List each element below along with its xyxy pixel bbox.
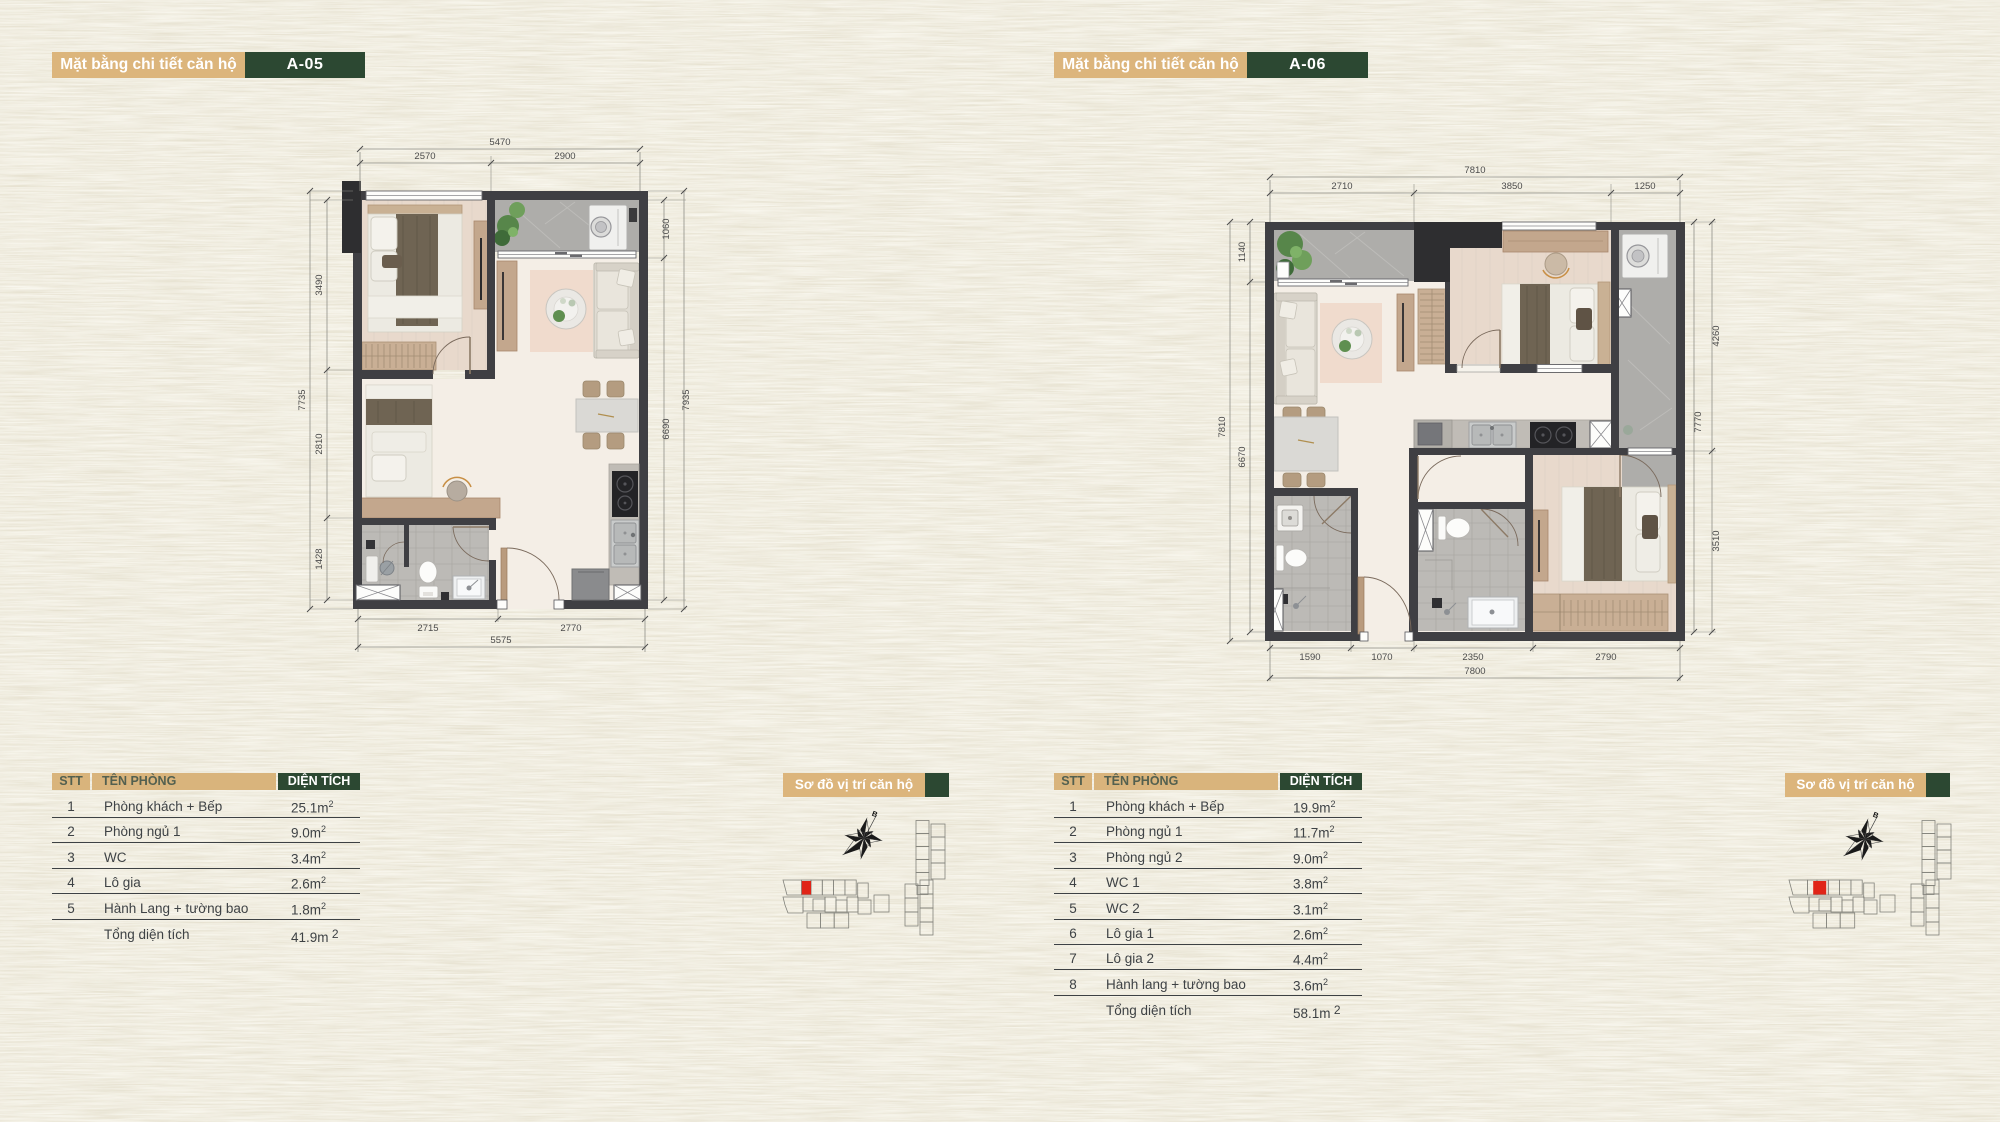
svg-text:2810: 2810 bbox=[314, 433, 325, 454]
svg-text:6670: 6670 bbox=[1237, 446, 1248, 467]
svg-text:B: B bbox=[1872, 810, 1881, 821]
svg-text:2900: 2900 bbox=[554, 151, 575, 162]
svg-text:5470: 5470 bbox=[489, 137, 510, 148]
svg-text:1140: 1140 bbox=[1237, 242, 1248, 262]
svg-text:5575: 5575 bbox=[490, 635, 511, 646]
svg-text:3490: 3490 bbox=[314, 274, 325, 295]
svg-text:7735: 7735 bbox=[297, 389, 308, 410]
svg-text:2790: 2790 bbox=[1595, 652, 1616, 663]
svg-text:2715: 2715 bbox=[417, 623, 438, 634]
svg-text:1428: 1428 bbox=[314, 548, 325, 569]
svg-text:3510: 3510 bbox=[1711, 530, 1722, 551]
svg-text:1070: 1070 bbox=[1371, 652, 1392, 663]
svg-text:1590: 1590 bbox=[1299, 652, 1320, 663]
svg-text:1250: 1250 bbox=[1634, 181, 1655, 192]
svg-text:6690: 6690 bbox=[661, 418, 672, 439]
svg-text:3850: 3850 bbox=[1501, 181, 1522, 192]
svg-text:2770: 2770 bbox=[560, 623, 581, 634]
svg-text:B: B bbox=[871, 809, 880, 820]
svg-text:2570: 2570 bbox=[414, 151, 435, 162]
svg-text:7770: 7770 bbox=[1693, 411, 1704, 432]
svg-text:7810: 7810 bbox=[1217, 416, 1228, 437]
svg-text:2350: 2350 bbox=[1462, 652, 1483, 663]
svg-text:7810: 7810 bbox=[1464, 165, 1485, 176]
svg-text:1060: 1060 bbox=[661, 218, 672, 239]
svg-text:4260: 4260 bbox=[1711, 325, 1722, 346]
svg-text:7800: 7800 bbox=[1464, 666, 1485, 677]
svg-text:7935: 7935 bbox=[681, 389, 692, 410]
svg-text:2710: 2710 bbox=[1331, 181, 1352, 192]
